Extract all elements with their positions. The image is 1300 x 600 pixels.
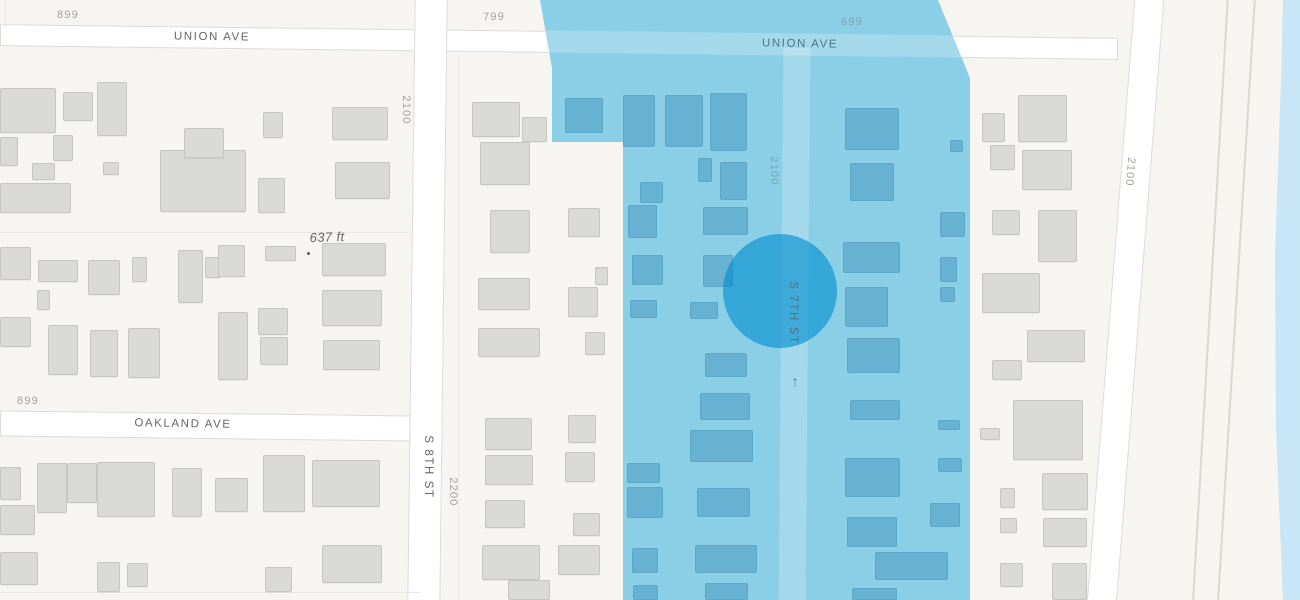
- label-street-name: S 8TH ST: [422, 435, 434, 498]
- building: [482, 545, 540, 580]
- building-in-zone: [720, 162, 747, 200]
- building: [103, 162, 119, 175]
- building: [38, 260, 78, 282]
- building-in-zone: [705, 583, 748, 600]
- building: [184, 128, 224, 158]
- building: [0, 247, 31, 280]
- building-in-zone: [850, 163, 894, 201]
- building: [37, 290, 50, 310]
- building: [565, 452, 595, 482]
- building-in-zone: [690, 302, 718, 319]
- building: [32, 163, 55, 180]
- building: [990, 145, 1015, 170]
- building: [485, 455, 533, 485]
- building: [312, 460, 380, 507]
- label-block-number: 799: [483, 11, 505, 23]
- label-street-name: UNION AVE: [174, 31, 250, 44]
- building: [478, 328, 540, 357]
- building-in-zone: [852, 588, 897, 600]
- building-in-zone: [705, 353, 747, 377]
- label-block-number: 2200: [447, 477, 459, 506]
- building: [485, 500, 525, 528]
- street-band: [1085, 0, 1165, 600]
- building-in-zone: [623, 95, 655, 147]
- building: [128, 328, 160, 378]
- label-elevation: 637 ft: [309, 229, 344, 245]
- building: [218, 312, 248, 380]
- building: [1013, 400, 1083, 460]
- building: [982, 273, 1040, 313]
- building: [568, 415, 596, 443]
- building: [323, 340, 380, 370]
- building: [90, 330, 118, 377]
- building: [260, 337, 288, 365]
- label-street-name: S 7TH ST: [787, 281, 799, 344]
- building: [585, 332, 605, 355]
- building: [0, 467, 21, 500]
- building: [48, 325, 78, 375]
- building: [1000, 563, 1023, 587]
- building-in-zone: [700, 393, 750, 420]
- building: [573, 513, 600, 536]
- building-in-zone: [950, 140, 963, 152]
- building: [0, 137, 18, 166]
- building: [0, 552, 38, 585]
- building-in-zone: [665, 95, 703, 147]
- building: [568, 287, 598, 317]
- block-hairline: [5, 0, 6, 28]
- building: [335, 162, 390, 199]
- street-band: [407, 0, 447, 600]
- building: [490, 210, 530, 253]
- label-block-number: 899: [57, 9, 79, 21]
- elevation-point-dot: [307, 252, 310, 255]
- building-in-zone: [632, 548, 658, 573]
- building-in-zone: [627, 487, 663, 518]
- label-block-number: 899: [17, 395, 39, 407]
- one-way-arrow-icon: ↑: [791, 374, 799, 391]
- building: [1043, 518, 1087, 547]
- building-in-zone: [940, 287, 955, 302]
- building: [982, 113, 1005, 142]
- building: [595, 267, 608, 285]
- building-in-zone: [627, 463, 660, 483]
- building: [218, 245, 245, 277]
- building: [1042, 473, 1088, 510]
- building-in-zone: [710, 93, 747, 151]
- building: [980, 428, 1000, 440]
- building-in-zone: [847, 517, 897, 547]
- building-in-zone: [850, 400, 900, 420]
- building: [0, 183, 71, 213]
- zone-street-band: [538, 30, 974, 57]
- label-block-number: 699: [841, 16, 863, 28]
- building: [53, 135, 73, 161]
- building: [63, 92, 93, 121]
- building: [178, 250, 203, 303]
- label-block-number: 2100: [400, 95, 412, 124]
- building: [263, 455, 305, 512]
- block-hairline: [0, 592, 420, 593]
- building: [485, 418, 532, 450]
- building: [1052, 563, 1087, 600]
- building: [265, 567, 292, 592]
- building: [322, 243, 386, 276]
- building: [1038, 210, 1077, 262]
- building-in-zone: [628, 205, 657, 238]
- building-in-zone: [633, 585, 658, 600]
- building-in-zone: [632, 255, 663, 285]
- building: [215, 478, 248, 512]
- building: [568, 208, 600, 237]
- label-block-number: 2100: [768, 156, 780, 185]
- building: [1018, 95, 1067, 142]
- building-in-zone: [938, 420, 960, 430]
- building: [88, 260, 120, 295]
- building: [322, 545, 382, 583]
- building: [472, 102, 520, 137]
- building: [37, 463, 67, 513]
- map-canvas[interactable]: 699UNION AVE2100S 7TH ST ↑ 899UNION AVE7…: [0, 0, 1300, 600]
- building: [1022, 150, 1072, 190]
- building-in-zone: [845, 287, 888, 327]
- building-in-zone: [940, 257, 957, 282]
- building: [97, 462, 155, 517]
- building: [258, 178, 285, 213]
- building-in-zone: [630, 300, 657, 318]
- label-street-name: OAKLAND AVE: [134, 417, 231, 431]
- building: [172, 468, 202, 517]
- building: [97, 82, 127, 136]
- building-in-zone: [845, 108, 899, 150]
- building: [992, 210, 1020, 235]
- building: [992, 360, 1022, 380]
- building-in-zone: [697, 488, 750, 517]
- label-street-name: UNION AVE: [762, 37, 838, 50]
- building-in-zone: [640, 182, 663, 203]
- building: [0, 317, 31, 347]
- building-in-zone: [930, 503, 960, 527]
- building-in-zone: [698, 158, 712, 182]
- building: [1027, 330, 1085, 362]
- building: [480, 142, 530, 185]
- building: [265, 246, 296, 261]
- building: [478, 278, 530, 310]
- building-in-zone: [845, 458, 900, 497]
- building: [322, 290, 382, 326]
- building-in-zone: [690, 430, 753, 462]
- building-in-zone: [843, 242, 900, 273]
- block-hairline: [458, 55, 459, 600]
- building-in-zone: [938, 458, 962, 472]
- building: [0, 505, 35, 535]
- block-hairline: [0, 232, 408, 233]
- building: [263, 112, 283, 138]
- building: [160, 150, 246, 212]
- building: [258, 308, 288, 335]
- building: [1000, 488, 1015, 508]
- building: [0, 88, 56, 133]
- building-in-zone: [875, 552, 948, 580]
- building: [1000, 518, 1017, 533]
- building-in-zone: [565, 98, 603, 133]
- building: [97, 562, 120, 592]
- building: [522, 117, 547, 142]
- building: [558, 545, 600, 575]
- label-block-number: 2100: [1123, 157, 1138, 187]
- building: [67, 463, 97, 503]
- building-in-zone: [847, 338, 900, 373]
- building: [508, 580, 550, 600]
- selection-circle-marker[interactable]: [723, 234, 837, 348]
- building: [332, 107, 388, 140]
- building-in-zone: [940, 212, 965, 237]
- building: [132, 257, 147, 282]
- building-in-zone: [703, 207, 748, 235]
- building-in-zone: [695, 545, 757, 573]
- building: [127, 563, 148, 587]
